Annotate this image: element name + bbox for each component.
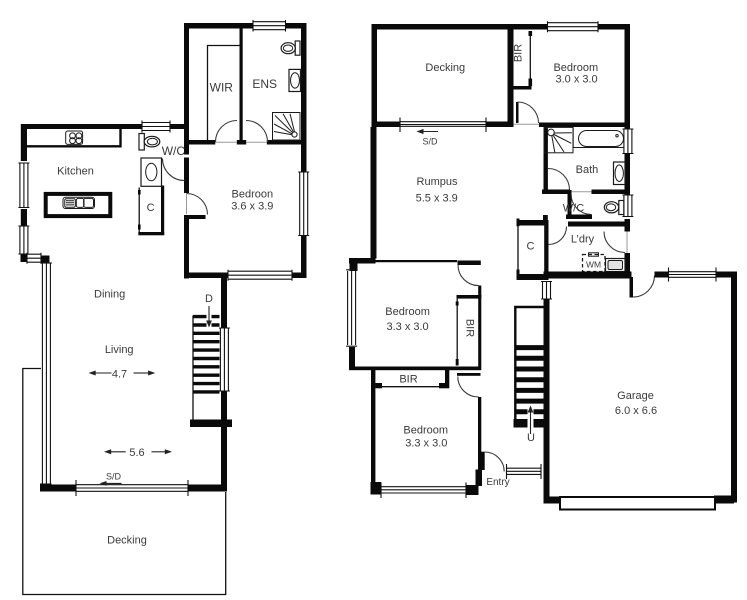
svg-text:BIR: BIR: [464, 319, 476, 337]
svg-text:S/D: S/D: [422, 137, 438, 147]
svg-text:Entry: Entry: [486, 477, 509, 488]
svg-text:BIR: BIR: [512, 44, 524, 62]
svg-text:W/C: W/C: [563, 203, 584, 215]
svg-text:Garage: Garage: [617, 390, 654, 402]
svg-text:L’dry: L’dry: [571, 234, 595, 246]
svg-text:Bedroon: Bedroon: [232, 189, 274, 201]
svg-text:ENS: ENS: [252, 77, 277, 91]
svg-text:Bath: Bath: [576, 164, 599, 176]
svg-text:BIR: BIR: [399, 374, 417, 386]
svg-text:4.7: 4.7: [112, 369, 127, 381]
svg-text:5.5 x 3.9: 5.5 x 3.9: [416, 193, 458, 205]
svg-text:W/C: W/C: [162, 144, 186, 158]
svg-text:U: U: [527, 432, 535, 444]
svg-text:Kitchen: Kitchen: [57, 166, 94, 178]
svg-text:Living: Living: [105, 344, 134, 356]
svg-text:Rumpus: Rumpus: [417, 176, 458, 188]
svg-text:Dining: Dining: [94, 289, 125, 301]
svg-text:Bedroom: Bedroom: [553, 62, 598, 74]
svg-text:3.3 x 3.0: 3.3 x 3.0: [405, 438, 447, 450]
svg-text:3.6 x 3.9: 3.6 x 3.9: [231, 201, 273, 213]
svg-text:C: C: [527, 241, 535, 253]
svg-text:Bedroom: Bedroom: [403, 425, 448, 437]
svg-text:Bedroom: Bedroom: [385, 306, 430, 318]
svg-text:Decking: Decking: [107, 535, 147, 547]
svg-text:C: C: [147, 202, 155, 214]
svg-text:5.6: 5.6: [129, 447, 144, 459]
svg-text:3.3 x 3.0: 3.3 x 3.0: [386, 321, 428, 333]
svg-text:D: D: [205, 293, 213, 305]
svg-text:6.0 x 6.6: 6.0 x 6.6: [615, 405, 657, 417]
svg-text:S/D: S/D: [106, 471, 122, 481]
svg-text:WM: WM: [586, 260, 601, 270]
svg-text:WIR: WIR: [210, 81, 234, 95]
svg-text:3.0 x 3.0: 3.0 x 3.0: [555, 74, 597, 86]
svg-text:Decking: Decking: [425, 62, 465, 74]
